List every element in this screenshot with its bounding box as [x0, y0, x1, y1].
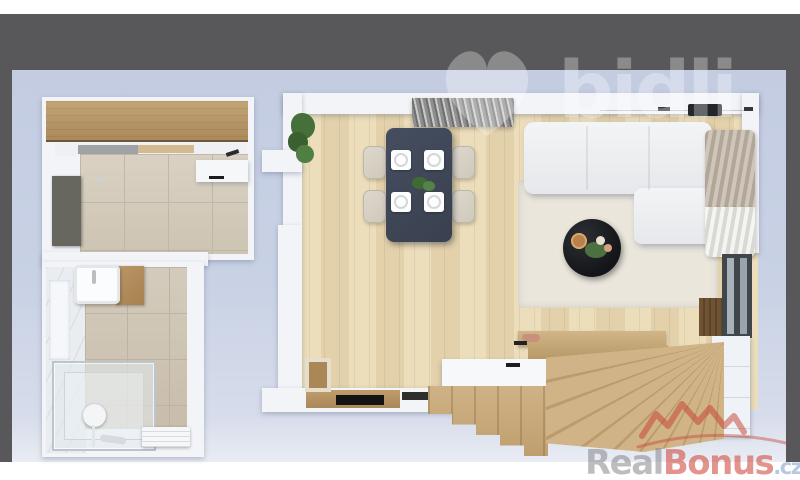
kitchen-countertop-wood-section [138, 145, 194, 153]
place-setting [391, 192, 411, 212]
remote-icon-2 [744, 107, 753, 111]
place-setting [424, 150, 444, 170]
bench-handle-icon [514, 341, 527, 345]
landing-handle-icon [506, 363, 520, 367]
bidli-text: bidli [558, 52, 735, 130]
place-setting [391, 150, 411, 170]
sink-faucet-icon [92, 270, 96, 284]
bathroom-wall-niche [49, 280, 70, 360]
place-setting [424, 192, 444, 212]
fireplace-inset [336, 395, 384, 405]
island-handle-icon [209, 176, 224, 179]
sofa-chaise [634, 188, 712, 244]
shower-glass-inner [64, 372, 144, 440]
daybed-white-throw [705, 207, 755, 257]
realbonus-text-tld: .cz [773, 455, 800, 479]
potted-plant-leaf-2 [296, 145, 314, 163]
dining-chair [363, 146, 386, 179]
door-frame [305, 358, 331, 392]
bath-mat [142, 427, 190, 447]
dining-chair [452, 190, 475, 223]
dining-chair [452, 146, 475, 179]
floorplan-render: bidli RealBonus.cz [0, 0, 800, 480]
bathroom-vanity-cabinet [116, 266, 144, 305]
stairwell-panel [699, 298, 722, 336]
shower-head-icon [83, 404, 106, 427]
living-room-left-wall-lower [278, 225, 302, 393]
kitchen-upper-cabinets [46, 101, 248, 142]
bidli-watermark [427, 36, 547, 138]
shower-hose-icon [92, 425, 95, 447]
bathroom-sink [74, 265, 120, 304]
kitchen-door [52, 176, 81, 246]
flower-pink-icon [604, 244, 612, 252]
realbonus-text-real: Real [585, 443, 663, 480]
realbonus-text: RealBonus.cz [585, 446, 800, 480]
table-centerpiece-leaf [423, 181, 435, 191]
dining-chair [363, 190, 386, 223]
realbonus-text-bonus: Bonus [663, 443, 773, 480]
daybed-taupe-throw [705, 130, 755, 207]
window-glass-icon [727, 258, 734, 334]
stair-bench-step-1 [518, 331, 666, 346]
flower-white-icon [596, 236, 605, 245]
kitchen-countertop-gray-section [78, 145, 138, 154]
window-glass-icon-2 [740, 258, 747, 334]
vent-grille [402, 392, 430, 400]
heart-icon [427, 36, 547, 138]
door-handle-icon [96, 178, 104, 181]
